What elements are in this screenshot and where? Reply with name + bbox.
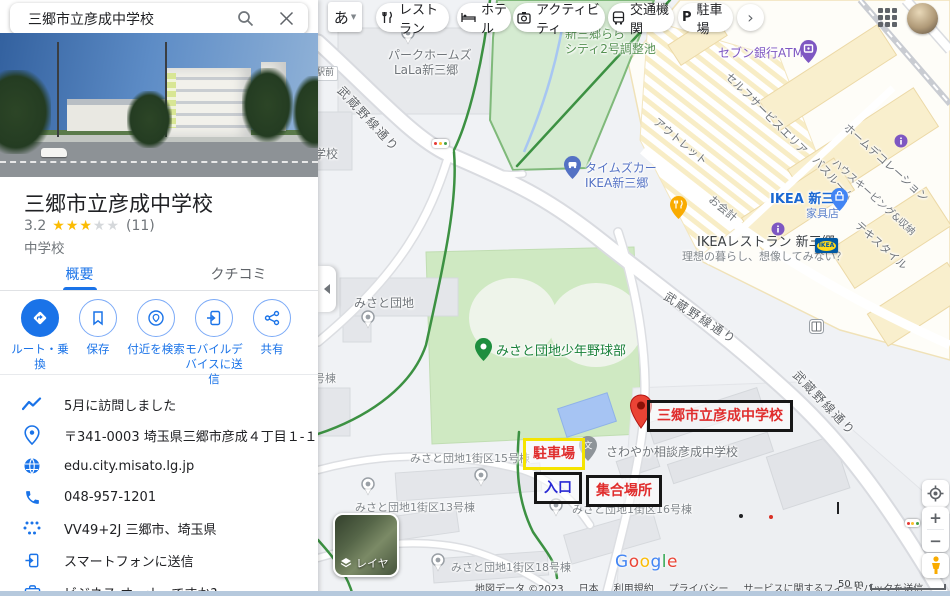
taskbar-edge [0, 591, 950, 596]
chevron-down-icon: ▼ [351, 13, 356, 21]
nearby-icon [147, 309, 165, 327]
map-label-timescar-1: タイムズカー [585, 161, 657, 176]
chip-hotels[interactable]: ホテル [457, 3, 511, 32]
traffic-light-icon-2 [905, 519, 920, 527]
map-scale: 50 m [838, 579, 946, 590]
gray-pin-bldg13[interactable] [361, 477, 375, 497]
place-photo[interactable] [0, 33, 318, 177]
road-shield-ekimae: 駅前 [318, 66, 338, 81]
map-mark-dot-red [769, 515, 773, 519]
chip-activities[interactable]: アクティビティ [513, 3, 605, 32]
hotel-icon [461, 11, 476, 24]
map-label-bldg15: みさと団地1街区15号棟 [410, 452, 530, 466]
map-label-parkhomes: パークホームズ [388, 48, 472, 63]
sidebar-collapse-button[interactable] [318, 266, 336, 312]
clear-search-button[interactable] [264, 11, 308, 26]
info-dot-icon-1 [771, 222, 785, 236]
chevron-left-icon [324, 284, 330, 294]
search-icon [237, 10, 254, 27]
annotation-parking: 駐車場 [523, 438, 585, 470]
chip-transit[interactable]: 交通機関 [608, 3, 674, 32]
share-icon [264, 310, 280, 326]
globe-icon [23, 457, 41, 475]
gray-pin-bldg15[interactable] [474, 468, 488, 488]
google-logo[interactable]: Google [615, 552, 678, 572]
ime-label: あ [334, 7, 349, 28]
map-label-misato-danchi: みさと団地 [354, 296, 414, 311]
bus-icon [612, 11, 625, 25]
scale-bar [870, 584, 946, 590]
plus-code-text: VV49+2J 三郷市、埼玉県 [64, 519, 216, 538]
chip-label: ホテル [481, 0, 507, 37]
action-label: ルート・乗換 [8, 342, 72, 372]
layers-icon [340, 557, 352, 569]
search-input[interactable]: 三郷市立彦成中学校 [10, 9, 226, 29]
search-box[interactable]: 三郷市立彦成中学校 [10, 3, 308, 34]
map-label-bldg18: みさと団地1街区18号棟 [451, 561, 571, 575]
visited-text: 5月に訪問しました [64, 395, 176, 414]
map-mark-tick [837, 502, 839, 514]
map-label-ikea-restaurant[interactable]: IKEAレストラン 新三郷 [697, 235, 835, 251]
map-label-bldg16-partial: 16号棟 [318, 372, 336, 386]
divider [0, 290, 318, 291]
share-button[interactable]: 共有 [243, 299, 301, 357]
action-label: モバイルデバイスに送信 [182, 342, 246, 387]
chip-parking[interactable]: P 駐車場 [678, 3, 733, 32]
tab-bar: 概要 クチコミ [0, 256, 318, 291]
directions-button[interactable]: ルート・乗換 [11, 299, 69, 372]
chip-label: アクティビティ [536, 0, 601, 37]
chevron-right-icon: › [747, 8, 753, 27]
close-icon [279, 11, 294, 26]
save-button[interactable]: 保存 [69, 299, 127, 357]
account-avatar[interactable] [907, 3, 938, 34]
place-panel: 三郷市立彦成中学校 三郷市立彦成中学校 3.2 ★★★★★ [0, 0, 318, 596]
place-title: 三郷市立彦成中学校 [24, 188, 213, 218]
map-label-seven-atm: セブン銀行ATM [718, 46, 803, 61]
info-row-visited[interactable]: 5月に訪問しました [0, 390, 318, 418]
ikea-logo-text: IKEA [817, 241, 836, 251]
annotation-school-name: 三郷市立彦成中学校 [647, 400, 793, 432]
gray-pin-bldg18[interactable] [431, 553, 445, 573]
send-to-device-icon [205, 309, 223, 327]
place-pin-icon [24, 425, 40, 445]
chip-label: 駐車場 [697, 0, 729, 37]
zoom-control: + − [922, 507, 949, 552]
google-maps-app: パークホームズ LaLa新三郷 新三郷らら シティ2号調整池 武蔵野線通り 武蔵… [0, 0, 950, 596]
map-mark-dot-black [739, 514, 743, 518]
map-label-timescar-2: IKEA新三郷 [585, 176, 648, 191]
gray-pin-misato-danchi[interactable] [361, 310, 375, 330]
map-label-parkhomes-2: LaLa新三郷 [394, 63, 458, 78]
timescar-pin[interactable] [564, 156, 581, 180]
send-to-device-button[interactable]: モバイルデバイスに送信 [185, 299, 243, 387]
my-location-button[interactable] [922, 480, 949, 507]
timeline-icon [22, 397, 42, 411]
send-to-phone-text: スマートフォンに送信 [64, 551, 194, 570]
layers-button[interactable]: レイヤ [333, 513, 399, 577]
action-label: 共有 [240, 342, 304, 357]
map-canvas[interactable]: パークホームズ LaLa新三郷 新三郷らら シティ2号調整池 武蔵野線通り 武蔵… [318, 0, 950, 596]
tab-overview[interactable]: 概要 [0, 256, 159, 291]
review-count[interactable]: (11) [126, 218, 155, 234]
my-location-icon [927, 485, 944, 502]
seven-atm-pin[interactable] [800, 40, 817, 64]
info-dot-icon-2 [894, 134, 908, 148]
google-apps-grid-icon[interactable] [878, 8, 899, 29]
map-label-pond-2: シティ2号調整池 [565, 42, 656, 57]
star-rating: ★★★★★ [52, 218, 120, 234]
place-category: 中学校 [24, 237, 65, 257]
annotation-meeting-point: 集合場所 [586, 475, 662, 507]
bookmark-icon [90, 310, 106, 326]
chip-restaurants[interactable]: レストラン [376, 3, 449, 32]
layers-label: レイヤ [356, 555, 389, 571]
rating-row[interactable]: 3.2 ★★★★★ (11) [24, 218, 155, 234]
elevator-icon [809, 319, 824, 334]
action-bar: ルート・乗換 保存 付近を検索 モバイルデバイスに送信 共有 [0, 297, 318, 375]
address-text: 〒341-0003 埼玉県三郷市彦成４丁目１-１９ [64, 426, 318, 445]
parking-icon: P [682, 10, 692, 25]
map-label-school-partial: 学校 [318, 147, 338, 162]
info-row-website[interactable]: edu.city.misato.lg.jp [0, 452, 318, 480]
search-button[interactable] [226, 10, 264, 27]
info-row-plus-code[interactable]: VV49+2J 三郷市、埼玉県 [0, 514, 318, 542]
search-nearby-button[interactable]: 付近を検索 [127, 299, 185, 357]
map-label-sawayaka: さわやか相談彦成中学校 [606, 445, 738, 460]
annotation-entrance: 入口 [534, 472, 582, 504]
phone-text: 048-957-1201 [64, 490, 156, 505]
traffic-light-icon-1 [432, 139, 449, 148]
info-row-phone[interactable]: 048-957-1201 [0, 483, 318, 511]
pegman-icon [930, 556, 942, 575]
send-to-phone-icon [24, 552, 41, 569]
restaurant-icon [380, 11, 394, 25]
action-label: 保存 [66, 342, 130, 357]
chip-label: レストラン [399, 0, 445, 37]
scale-label: 50 m [838, 579, 864, 590]
camera-icon [517, 11, 531, 24]
plus-code-icon [23, 520, 41, 536]
phone-icon [24, 489, 41, 506]
baseball-club-pin[interactable] [475, 338, 492, 362]
zoom-in-button[interactable]: + [922, 507, 949, 529]
tab-reviews[interactable]: クチコミ [159, 256, 318, 291]
info-row-send-to-phone[interactable]: スマートフォンに送信 [0, 546, 318, 574]
website-text: edu.city.misato.lg.jp [64, 459, 194, 474]
ikea-logo-badge: IKEA [815, 238, 838, 253]
rating-value: 3.2 [24, 218, 46, 234]
chips-expand-button[interactable]: › [737, 4, 764, 31]
zoom-out-button[interactable]: − [922, 530, 949, 552]
ikea-store-pin[interactable] [831, 188, 848, 212]
restaurant-pin[interactable] [670, 196, 687, 220]
pegman-button[interactable] [922, 553, 949, 578]
action-label: 付近を検索 [124, 342, 188, 357]
directions-icon [31, 309, 49, 327]
chip-label: 交通機関 [630, 0, 670, 37]
map-label-baseball-club[interactable]: みさと団地少年野球部 [496, 344, 626, 360]
info-row-address[interactable]: 〒341-0003 埼玉県三郷市彦成４丁目１-１９ [0, 421, 318, 449]
ime-language-button[interactable]: あ▼ [328, 2, 362, 32]
